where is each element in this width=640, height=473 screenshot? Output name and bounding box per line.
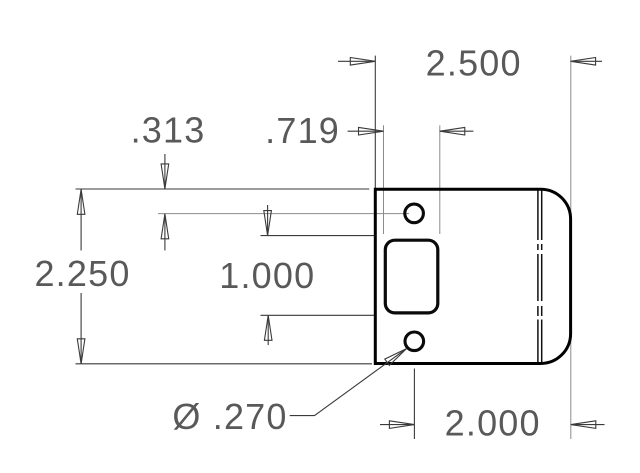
svg-text:1.000: 1.000 [219,255,315,296]
svg-text:Ø .270: Ø .270 [172,396,287,437]
svg-text:2.250: 2.250 [34,253,130,294]
svg-text:.313: .313 [131,110,206,151]
svg-text:.719: .719 [265,110,340,151]
svg-text:2.000: 2.000 [445,403,541,444]
svg-text:2.500: 2.500 [426,43,522,84]
